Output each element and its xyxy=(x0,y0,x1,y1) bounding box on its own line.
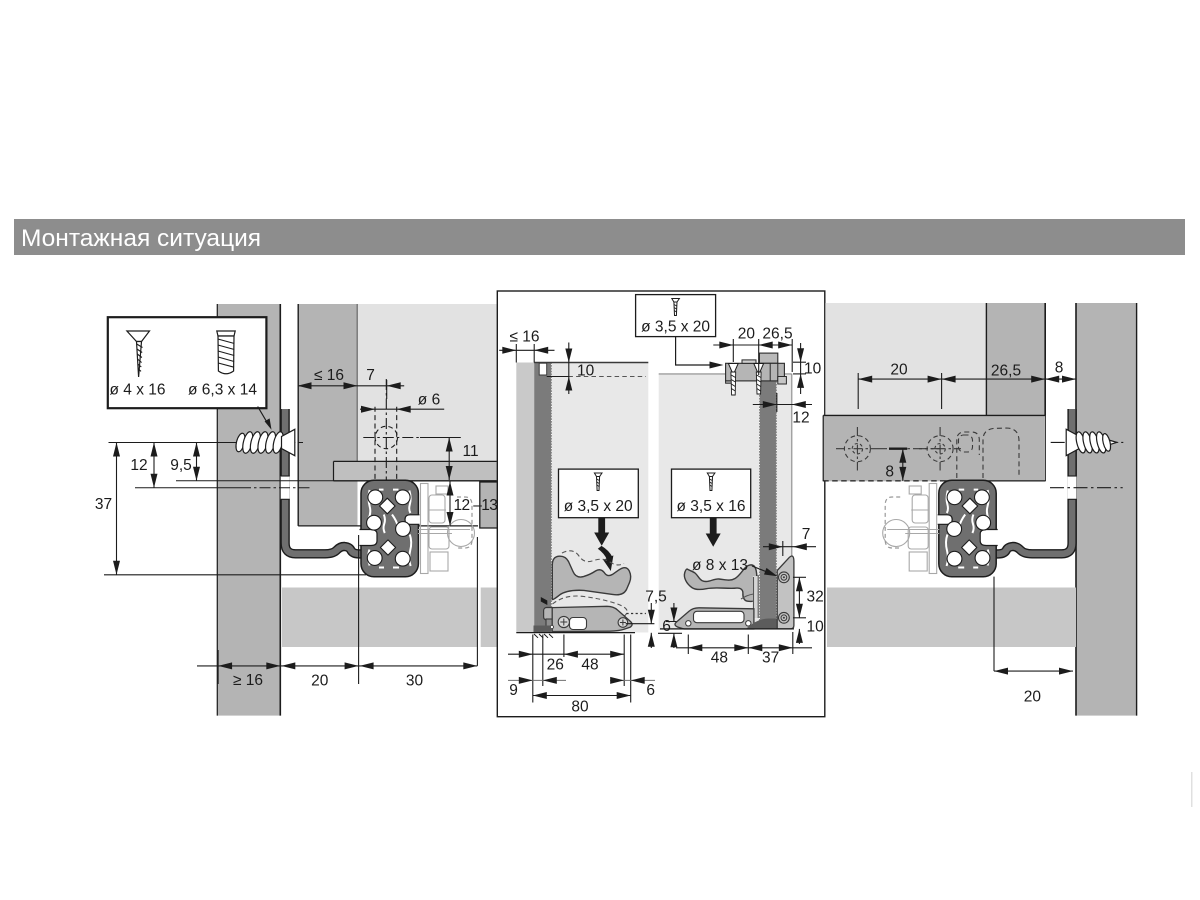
svg-text:8: 8 xyxy=(885,464,894,481)
svg-text:≥ 16: ≥ 16 xyxy=(233,672,263,689)
svg-text:9: 9 xyxy=(509,682,518,699)
svg-text:ø 6: ø 6 xyxy=(418,391,440,408)
svg-text:ø 4 x 16: ø 4 x 16 xyxy=(110,382,166,399)
svg-text:ø 3,5 x 16: ø 3,5 x 16 xyxy=(677,498,746,515)
svg-text:≤ 16: ≤ 16 xyxy=(314,367,344,384)
svg-text:≤ 16: ≤ 16 xyxy=(509,329,539,346)
svg-text:32: 32 xyxy=(807,589,824,606)
svg-text:8: 8 xyxy=(1055,360,1064,377)
svg-text:6: 6 xyxy=(662,618,671,635)
svg-text:ø 3,5 x 20: ø 3,5 x 20 xyxy=(641,319,710,336)
svg-text:20: 20 xyxy=(311,673,329,690)
svg-text:Монтажная ситуация: Монтажная ситуация xyxy=(21,225,261,252)
svg-text:7,5: 7,5 xyxy=(645,589,667,606)
svg-text:10: 10 xyxy=(804,361,822,378)
svg-text:ø 8 x 13: ø 8 x 13 xyxy=(692,557,748,574)
svg-text:37: 37 xyxy=(95,496,112,513)
svg-text:9,5: 9,5 xyxy=(170,457,192,474)
svg-text:37: 37 xyxy=(762,650,779,667)
svg-text:ø 6,3 x 14: ø 6,3 x 14 xyxy=(188,382,257,399)
svg-text:12 –13: 12 –13 xyxy=(454,497,498,514)
svg-text:26: 26 xyxy=(547,657,564,674)
svg-text:10: 10 xyxy=(577,363,595,380)
svg-text:80: 80 xyxy=(571,699,589,716)
svg-text:10: 10 xyxy=(807,619,825,636)
svg-text:26,5: 26,5 xyxy=(762,326,792,343)
svg-text:30: 30 xyxy=(406,673,424,690)
svg-text:7: 7 xyxy=(366,367,375,384)
svg-text:12: 12 xyxy=(130,457,147,474)
svg-text:11: 11 xyxy=(463,443,479,460)
svg-text:20: 20 xyxy=(890,362,908,379)
svg-text:20: 20 xyxy=(1024,689,1042,706)
svg-text:ø 3,5 x 20: ø 3,5 x 20 xyxy=(564,498,633,515)
svg-text:26,5: 26,5 xyxy=(991,363,1021,380)
svg-text:7: 7 xyxy=(802,526,811,543)
svg-text:48: 48 xyxy=(711,650,728,667)
svg-text:48: 48 xyxy=(581,657,598,674)
svg-text:6: 6 xyxy=(646,682,655,699)
svg-text:20: 20 xyxy=(738,326,756,343)
svg-text:12: 12 xyxy=(792,410,809,427)
